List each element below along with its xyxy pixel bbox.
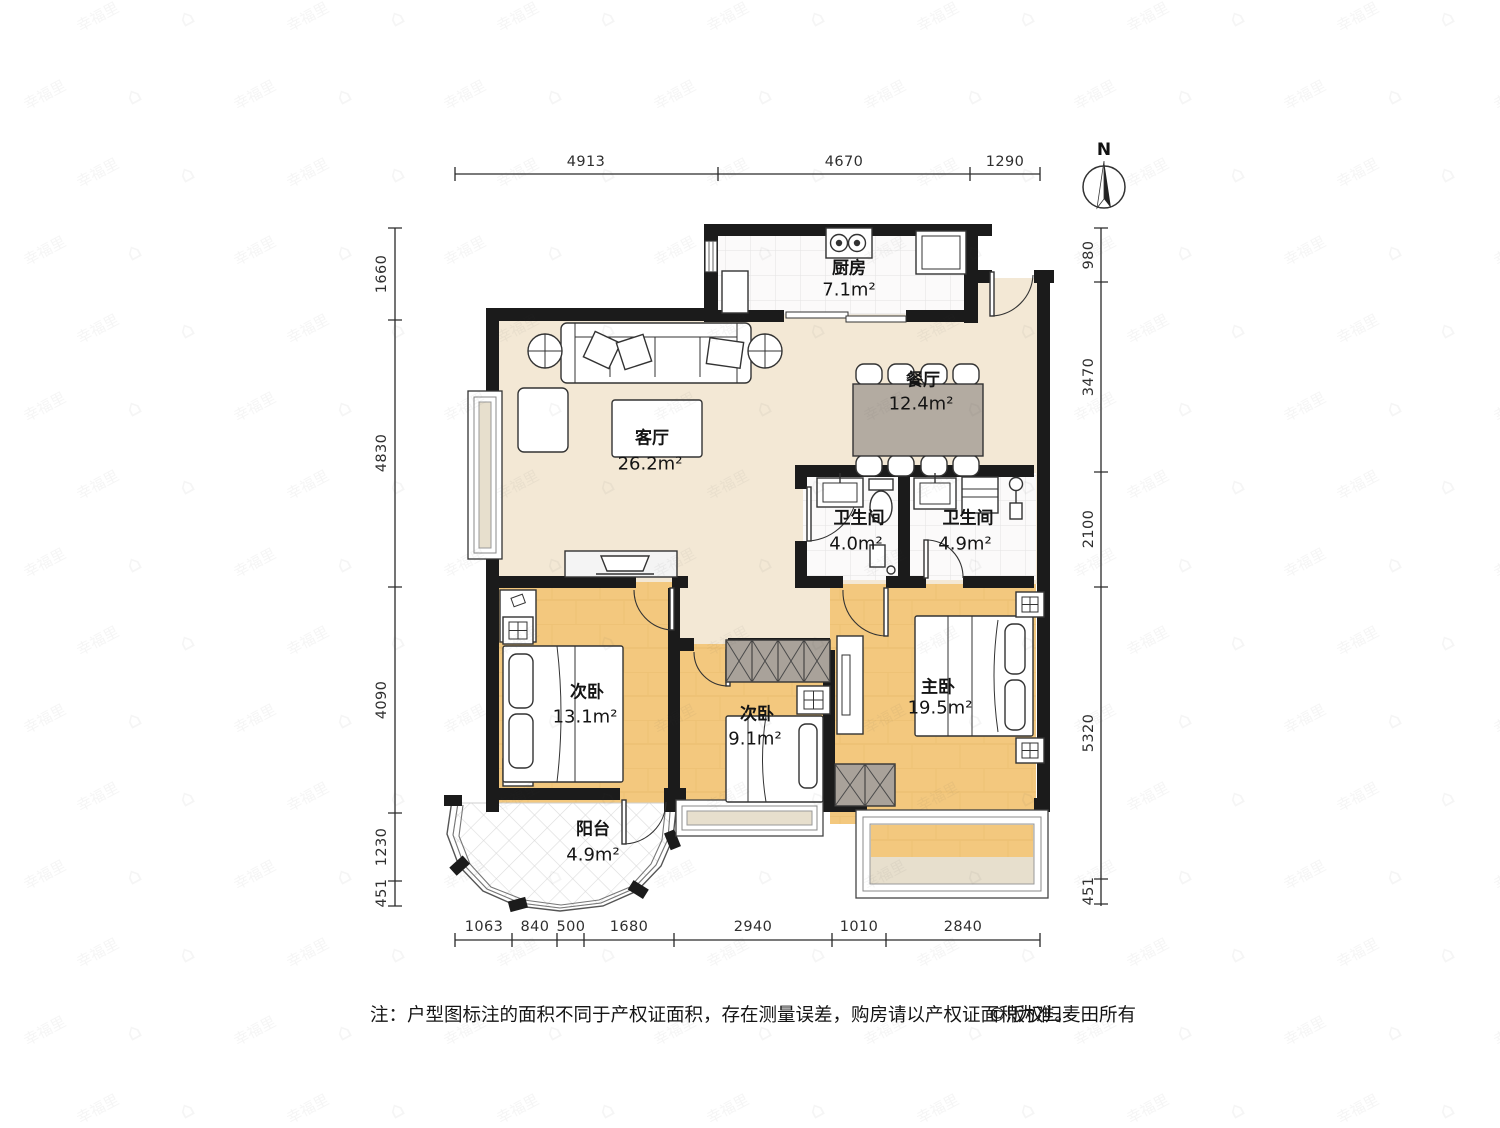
room-label-kitchen: 厨房: [832, 254, 866, 279]
room-label-balcony: 阳台: [576, 815, 610, 840]
wardrobe-master: [835, 764, 895, 806]
dim-left-1: 1660: [374, 255, 390, 294]
dim-top-1: 4913: [567, 154, 606, 170]
wardrobe-bedroom-b2: [726, 640, 830, 682]
dim-right-1: 980: [1081, 241, 1097, 270]
nightstand: [1016, 592, 1044, 617]
dim-bottom-6: 1010: [840, 919, 879, 935]
room-label-bedroom-b2: 次卧: [740, 700, 774, 725]
room-label-bath-a: 卫生间: [834, 504, 885, 529]
dim-line-top: [455, 167, 1040, 181]
sink-bath-a: [817, 473, 863, 507]
room-area-master: 19.5m²: [908, 698, 973, 719]
balcony-structure: [444, 795, 681, 912]
floor-entry: [976, 278, 1040, 322]
room-area-living: 26.2m²: [618, 454, 683, 475]
dim-bottom-2: 840: [521, 919, 550, 935]
dim-top-3: 1290: [986, 154, 1025, 170]
side-table-round-right: [748, 334, 782, 368]
floor-plan-page: 厨房 7.1m² 餐厅 12.4m² 客厅 26.2m² 卫生间 4.0m² 卫…: [0, 0, 1500, 1125]
dim-top-2: 4670: [825, 154, 864, 170]
window-kitchen-west: [705, 241, 717, 272]
dim-bottom-4: 1680: [610, 919, 649, 935]
floor-plan-drawing: [0, 0, 1500, 1125]
dim-bottom-3: 500: [557, 919, 586, 935]
nightstand: [797, 686, 830, 714]
room-label-living: 客厅: [635, 424, 669, 449]
kitchen-cabinet: [722, 271, 748, 313]
room-label-master: 主卧: [921, 673, 955, 698]
bay-window-bedroom-b2: [676, 800, 823, 836]
bay-window-living-west: [468, 391, 502, 559]
dim-line-left: [388, 228, 402, 906]
nightstand: [503, 617, 533, 644]
room-area-kitchen: 7.1m²: [822, 280, 875, 301]
tv-stand-master: [837, 636, 863, 734]
north-label: N: [1097, 140, 1111, 160]
room-area-bath-b: 4.9m²: [938, 534, 991, 555]
dim-right-2: 3470: [1081, 358, 1097, 397]
dim-right-3: 2100: [1081, 510, 1097, 549]
dim-left-3: 4090: [374, 681, 390, 720]
dim-left-2: 4830: [374, 434, 390, 473]
dim-left-5: 451: [374, 879, 390, 908]
room-label-bedroom-b1: 次卧: [570, 678, 604, 703]
side-table-round-left: [528, 334, 562, 368]
dim-right-4: 5320: [1081, 714, 1097, 753]
room-area-bath-a: 4.0m²: [829, 534, 882, 555]
room-area-balcony: 4.9m²: [566, 845, 619, 866]
dim-bottom-7: 2840: [944, 919, 983, 935]
room-area-dining: 12.4m²: [889, 394, 954, 415]
room-area-bedroom-b2: 9.1m²: [728, 729, 781, 750]
disclaimer-note: 注：户型图标注的面积不同于产权证面积，存在测量误差，购房请以产权证面积为准。: [370, 1001, 1073, 1027]
dim-line-bottom: [455, 933, 1040, 947]
room-label-dining: 餐厅: [906, 366, 940, 391]
copyright-text: ©版权归麦田所有: [988, 1001, 1136, 1027]
room-area-bedroom-b1: 13.1m²: [553, 707, 618, 728]
bay-window-master: [856, 810, 1048, 898]
dim-line-right: [1094, 228, 1108, 906]
room-label-bath-b: 卫生间: [943, 504, 994, 529]
north-arrow-icon: [1083, 161, 1125, 208]
tv-stand-living: [565, 551, 677, 577]
kitchen-counter: [916, 231, 966, 274]
dim-bottom-5: 2940: [734, 919, 773, 935]
nightstand: [1016, 738, 1044, 763]
dim-left-4: 1230: [374, 828, 390, 867]
armchair: [518, 388, 568, 452]
dim-right-5: 451: [1081, 877, 1097, 906]
sofa: [561, 323, 751, 383]
footer: 注：户型图标注的面积不同于产权证面积，存在测量误差，购房请以产权证面积为准。 ©…: [0, 1001, 1500, 1031]
dim-bottom-1: 1063: [465, 919, 504, 935]
